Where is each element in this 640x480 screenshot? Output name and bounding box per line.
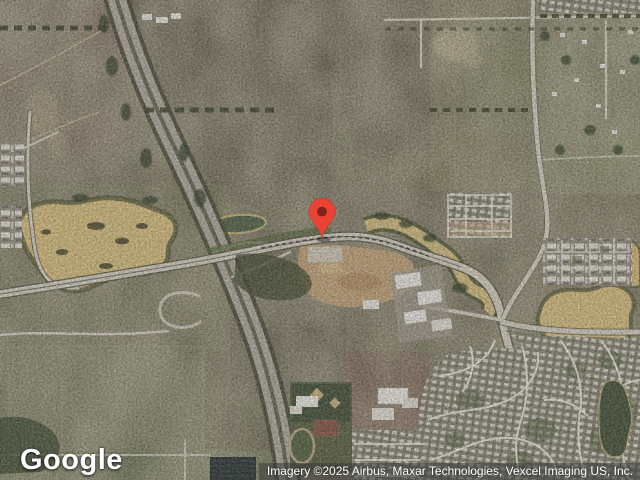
google-logo[interactable]: Google: [20, 444, 123, 477]
pin-dot: [317, 207, 327, 217]
imagery-attribution: Imagery ©2025 Airbus, Maxar Technologies…: [259, 463, 640, 480]
satellite-map[interactable]: [0, 0, 640, 480]
map-viewport: Google Imagery ©2025 Airbus, Maxar Techn…: [0, 0, 640, 480]
pin-shadow: [317, 237, 331, 243]
